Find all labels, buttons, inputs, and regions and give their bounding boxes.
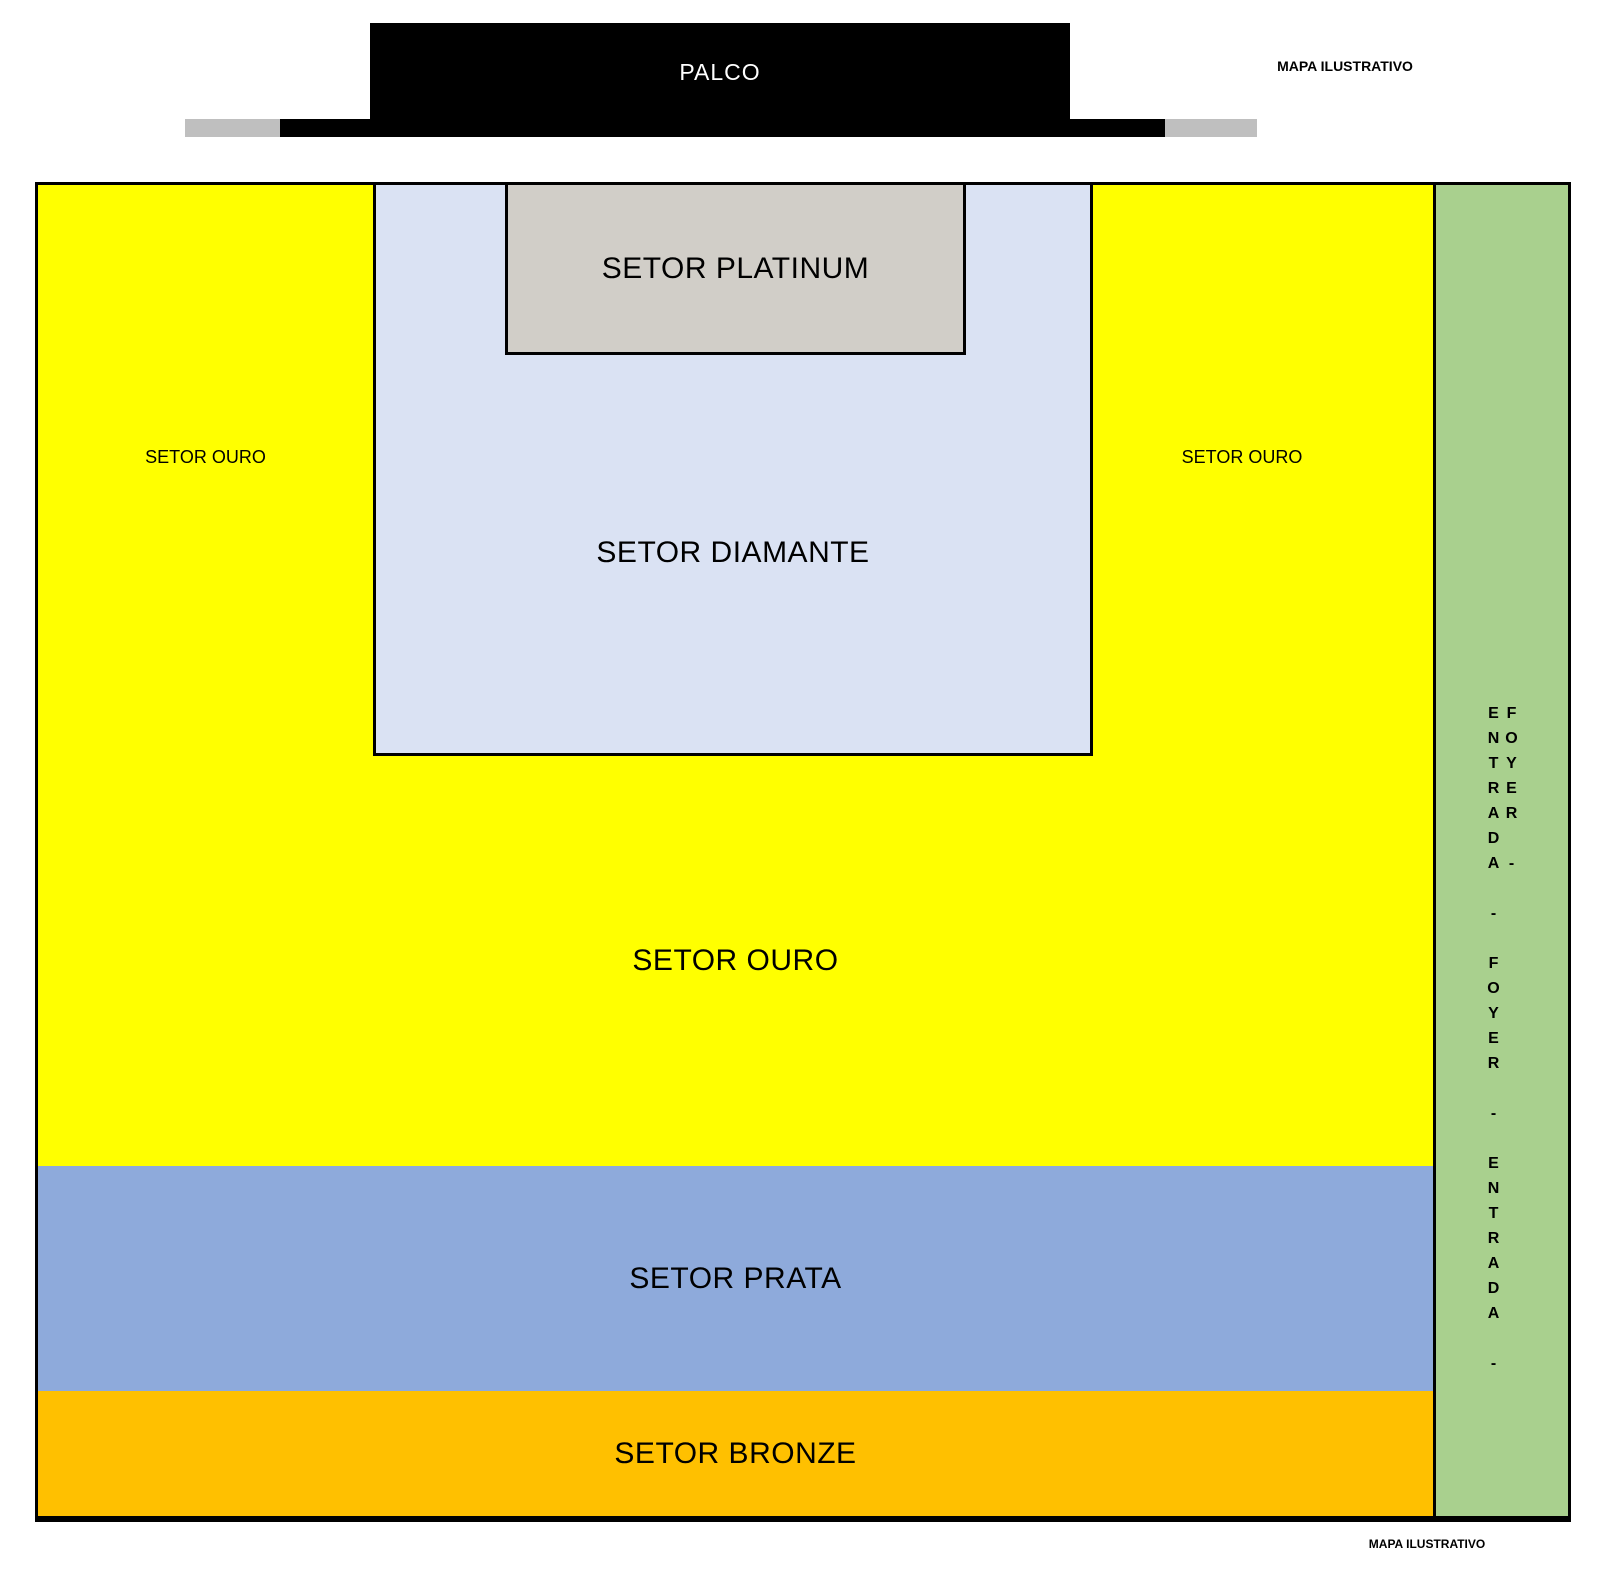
illustrative-map-note-bottom: MAPA ILUSTRATIVO	[1327, 1537, 1527, 1551]
stage-wing-left-bar	[185, 119, 280, 137]
stage-label: PALCO	[679, 59, 760, 86]
sector-ouro-main-label: SETOR OURO	[632, 944, 838, 978]
venue-map: SETOR PLATINUM SETOR DIAMANTE SETOR OURO…	[35, 182, 1571, 1522]
illustrative-map-note-top: MAPA ILUSTRATIVO	[1240, 58, 1450, 74]
sector-bronze: SETOR BRONZE	[38, 1391, 1433, 1516]
sector-diamante-label-area: SETOR DIAMANTE	[376, 352, 1090, 753]
sector-diamante: SETOR PLATINUM SETOR DIAMANTE	[373, 185, 1093, 756]
stage-wing-right-bar	[1165, 119, 1257, 137]
sector-prata: SETOR PRATA	[38, 1166, 1433, 1391]
sector-ouro-right-label: SETOR OURO	[1072, 447, 1412, 468]
sector-platinum: SETOR PLATINUM	[505, 185, 966, 355]
sector-ouro-left-label: SETOR OURO	[38, 447, 373, 468]
sector-diamante-label: SETOR DIAMANTE	[596, 536, 869, 570]
sector-ouro-main-label-area: SETOR OURO	[38, 756, 1433, 1166]
sector-bronze-label: SETOR BRONZE	[614, 1437, 856, 1471]
entrance-foyer-label: ENTRADA - FOYER - ENTRADA - FOYER -	[1484, 185, 1520, 1516]
stage: PALCO	[370, 23, 1070, 122]
sector-platinum-label: SETOR PLATINUM	[602, 252, 870, 286]
sector-prata-label: SETOR PRATA	[629, 1262, 841, 1296]
venue-seating-map-page: PALCO MAPA ILUSTRATIVO MAPA ILUSTRATIVO …	[0, 0, 1599, 1576]
entrance-foyer-column: ENTRADA - FOYER - ENTRADA - FOYER -	[1433, 185, 1568, 1516]
stage-apron-bar	[280, 119, 1165, 137]
